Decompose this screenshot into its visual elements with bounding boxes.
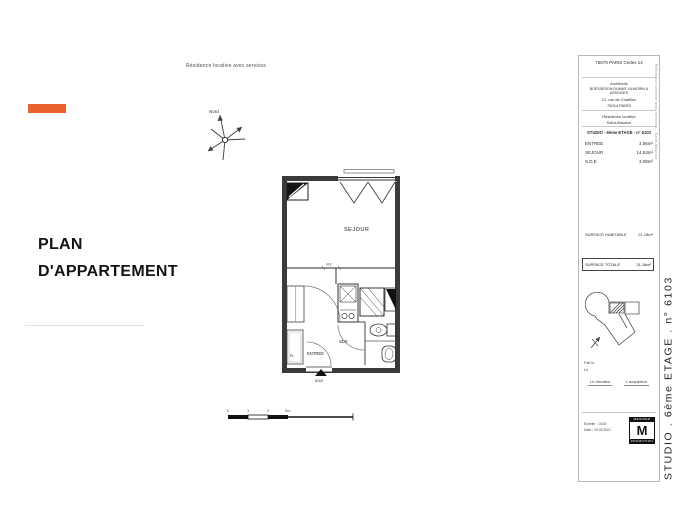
room-label-sejour: SEJOUR bbox=[344, 227, 369, 233]
placard: PL bbox=[287, 330, 303, 364]
logo-letter: M bbox=[629, 422, 655, 439]
surface-habitable-value: 21.18m² bbox=[638, 232, 653, 237]
surface-totale-value: 21.18m² bbox=[636, 262, 651, 267]
separator bbox=[582, 126, 656, 127]
residence-line2: Saint-Maurice bbox=[579, 120, 659, 125]
developer-logo: MEUNIER M PROMOTION bbox=[629, 417, 655, 444]
technical-shaft bbox=[385, 288, 397, 311]
date-label: Date : 19.03.2001 bbox=[584, 428, 624, 432]
surface-totale-label: SURFACE TOTALE bbox=[585, 262, 620, 267]
separator bbox=[582, 110, 656, 111]
entry-number-label: 6103 bbox=[315, 379, 323, 383]
kitchenette bbox=[338, 284, 358, 322]
room-name: SEJOUR bbox=[585, 150, 603, 155]
separator bbox=[582, 412, 656, 413]
cedex-address: 75679 PARIS Cedex 14 bbox=[579, 60, 659, 65]
separator bbox=[582, 77, 656, 78]
entry-door bbox=[306, 342, 332, 372]
room-area: 3.56m² bbox=[639, 141, 653, 146]
room-area-row: SEJOUR 14.53m² bbox=[585, 150, 653, 155]
key-plan bbox=[585, 292, 653, 354]
residence-line1: Résidence locative bbox=[579, 114, 659, 119]
unit-title: STUDIO - 6ème ETAGE - n° 6103 bbox=[579, 130, 659, 135]
accent-bar bbox=[28, 104, 66, 113]
surface-habitable-row: SURFACE HABITABLE 21.18m² bbox=[585, 232, 653, 237]
room-area-row: ENTREE 3.56m² bbox=[585, 141, 653, 146]
page-title: PLAN D'APPARTEMENT bbox=[38, 231, 178, 285]
room-label-entree: ENTREE bbox=[307, 351, 324, 356]
architect-street: 21, rue de Chatillon bbox=[579, 97, 659, 102]
closet-door-arc bbox=[304, 286, 340, 322]
residence-note: Résidence locative avec services bbox=[186, 63, 266, 69]
architect-city: 75014 PARIS bbox=[579, 103, 659, 108]
surface-totale-box: SURFACE TOTALE 21.18m² bbox=[582, 258, 654, 271]
signature-vendeur: Le Vendeur bbox=[588, 379, 612, 386]
vertical-unit-title: STUDIO . 6ème ETAGE . n° 6103 bbox=[658, 276, 679, 480]
washbasin bbox=[382, 346, 396, 362]
scale-tick-2: 2 bbox=[267, 408, 270, 413]
sde-door-arc bbox=[338, 325, 364, 350]
room-area-row: S.D.E 3.09m² bbox=[585, 159, 653, 164]
architect-name: BOESSESON DUMAS VILMORIN & ASSOCIES bbox=[579, 87, 659, 95]
compass-north-label: Nord bbox=[209, 109, 219, 114]
signature-acquereur: L'acquéreur bbox=[624, 379, 649, 386]
key-plan-north-icon bbox=[591, 337, 600, 348]
scale-bar: 0 1 2 5m bbox=[226, 406, 358, 424]
room-area: 14.53m² bbox=[636, 150, 653, 155]
le-label: Le bbox=[584, 368, 624, 372]
room-name: ENTREE bbox=[585, 141, 603, 146]
window-swing-left bbox=[340, 182, 368, 203]
dimension-label: 402 bbox=[326, 263, 332, 267]
scale-tick-3: 5m bbox=[285, 408, 291, 413]
window-bay bbox=[336, 170, 398, 204]
surface-habitable-label: SURFACE HABITABLE bbox=[585, 232, 627, 237]
corner-duct bbox=[287, 183, 308, 200]
divider-line bbox=[25, 325, 145, 326]
plan-document-page: Résidence locative avec services PLAN D'… bbox=[0, 0, 679, 525]
toilet bbox=[370, 324, 396, 336]
fait-le-label: Fait le bbox=[584, 361, 624, 365]
room-name: S.D.E bbox=[585, 159, 597, 164]
logo-bottom-text: PROMOTION bbox=[629, 439, 655, 444]
window-swing-right bbox=[368, 182, 395, 203]
floor-plan-drawing: SEJOUR 402 bbox=[282, 168, 400, 383]
room-label-placard: PL bbox=[290, 354, 294, 358]
window-ledge bbox=[344, 170, 394, 174]
room-area: 3.09m² bbox=[639, 159, 653, 164]
page-title-line2: D'APPARTEMENT bbox=[38, 258, 178, 285]
scale-tick-0: 0 bbox=[227, 408, 230, 413]
shower bbox=[360, 288, 384, 316]
page-title-line1: PLAN bbox=[38, 231, 178, 258]
architect-label: Architecte bbox=[579, 81, 659, 86]
key-plan-unit-hatch bbox=[610, 303, 624, 313]
scale-tick-1: 1 bbox=[247, 408, 250, 413]
echelle-label: Echelle : 1/100 bbox=[584, 422, 624, 426]
compass-rose-icon: Nord bbox=[198, 106, 250, 164]
title-block: 75679 PARIS Cedex 14 Architecte BOESSESO… bbox=[578, 55, 660, 482]
closet bbox=[287, 286, 340, 322]
